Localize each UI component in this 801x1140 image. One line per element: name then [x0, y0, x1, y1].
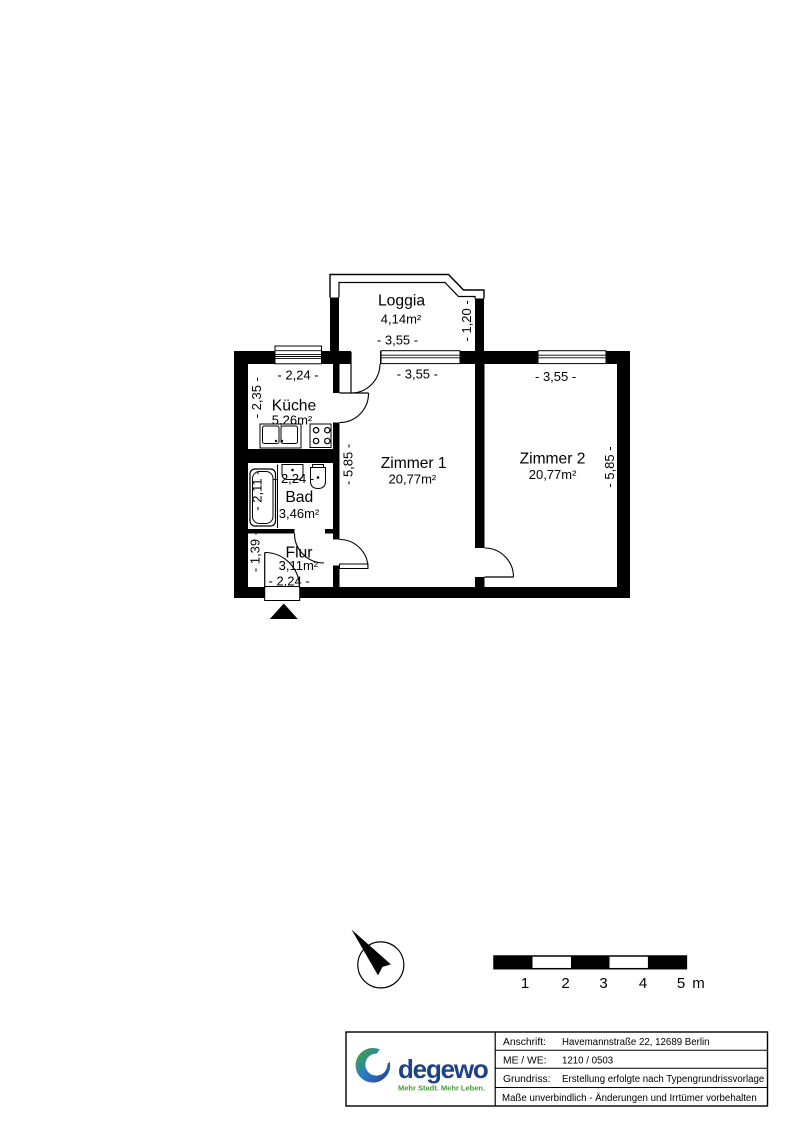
svg-text:2: 2: [561, 975, 569, 992]
svg-text:3,11m²: 3,11m²: [279, 558, 319, 573]
svg-text:Grundriss:: Grundriss:: [503, 1074, 551, 1085]
svg-text:degewo: degewo: [398, 1054, 488, 1084]
svg-text:- 3,55 -: - 3,55 -: [377, 333, 418, 348]
svg-text:20,77m²: 20,77m²: [529, 467, 577, 482]
svg-text:- 3,55 -: - 3,55 -: [535, 369, 576, 384]
svg-text:5: 5: [677, 975, 685, 992]
svg-text:- 2,11 -: - 2,11 -: [249, 470, 264, 510]
svg-text:Zimmer 1: Zimmer 1: [381, 455, 447, 472]
svg-text:20,77m²: 20,77m²: [389, 472, 437, 487]
svg-text:- 5,85 -: - 5,85 -: [340, 444, 355, 485]
svg-text:Havemannstraße 22, 12689 Berli: Havemannstraße 22, 12689 Berlin: [562, 1037, 710, 1048]
svg-text:- 3,55 -: - 3,55 -: [397, 367, 438, 382]
svg-text:- 5,85 -: - 5,85 -: [602, 446, 617, 487]
svg-text:Anschrift:: Anschrift:: [503, 1037, 546, 1048]
svg-text:Zimmer 2: Zimmer 2: [520, 451, 586, 468]
svg-text:- 1,20 -: - 1,20 -: [459, 300, 474, 341]
svg-text:ME / WE:: ME / WE:: [503, 1055, 546, 1066]
svg-text:5,26m²: 5,26m²: [272, 413, 313, 428]
svg-text:- 2,24 -: - 2,24 -: [273, 471, 314, 486]
svg-text:- 1,39 -: - 1,39 -: [247, 531, 262, 572]
svg-text:- 2,24 -: - 2,24 -: [269, 574, 310, 589]
svg-text:Maße unverbindlich - Änderunge: Maße unverbindlich - Änderungen und Irrt…: [502, 1093, 757, 1104]
svg-text:3,46m²: 3,46m²: [279, 506, 320, 521]
svg-text:3: 3: [599, 975, 607, 992]
svg-text:1210 / 0503: 1210 / 0503: [562, 1055, 613, 1066]
svg-text:- 2,35 -: - 2,35 -: [249, 377, 264, 418]
svg-text:m: m: [692, 975, 705, 992]
svg-text:4: 4: [639, 975, 647, 992]
svg-text:Erstellung erfolgte nach Typen: Erstellung erfolgte nach Typengrundrissv…: [562, 1074, 764, 1085]
svg-text:1: 1: [521, 975, 529, 992]
svg-text:Bad: Bad: [285, 489, 313, 506]
svg-text:Loggia: Loggia: [378, 293, 425, 310]
svg-text:4,14m²: 4,14m²: [381, 312, 422, 327]
svg-text:- 2,24 -: - 2,24 -: [277, 368, 318, 383]
svg-text:Mehr Stadt. Mehr Leben.: Mehr Stadt. Mehr Leben.: [398, 1084, 485, 1093]
